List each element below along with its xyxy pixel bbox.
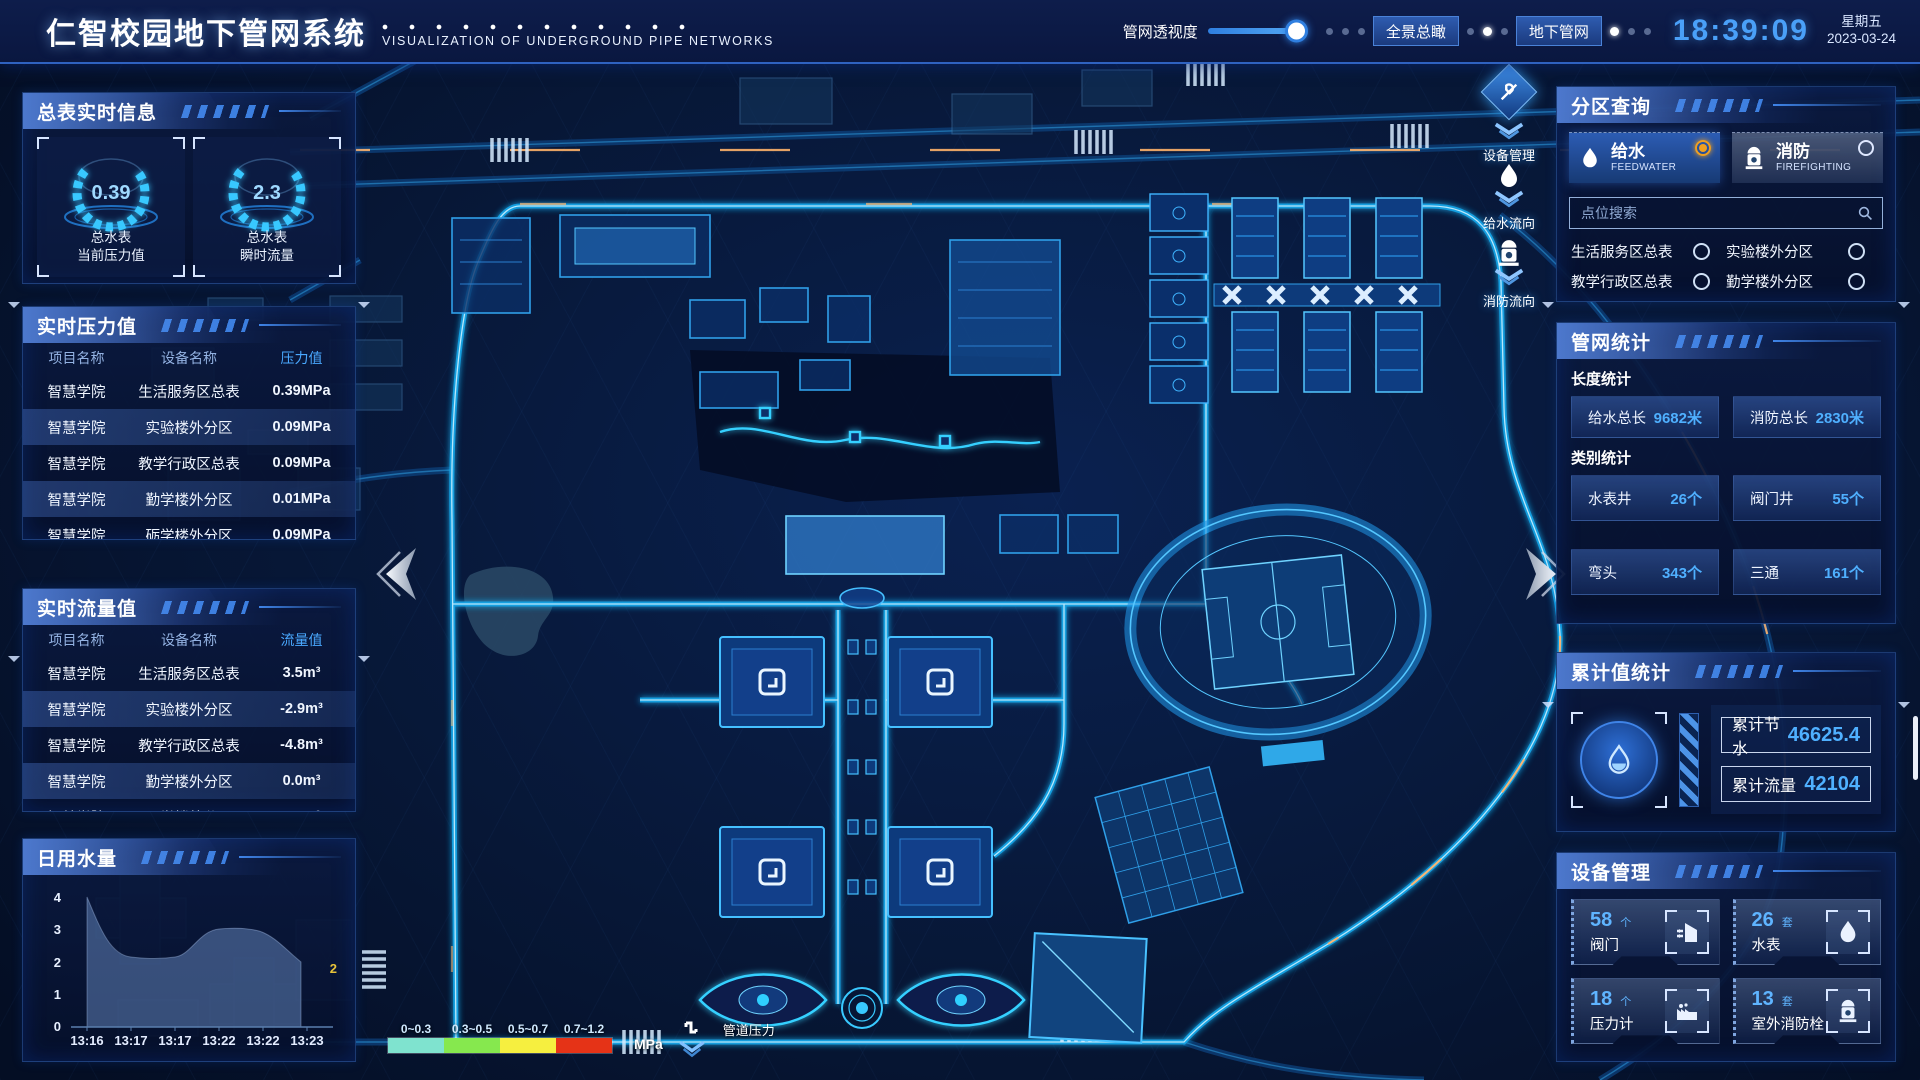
gym <box>1029 933 1146 1043</box>
zone-option[interactable]: 宿舍区泵房 <box>1726 297 1881 302</box>
radio-icon <box>1848 273 1865 290</box>
chart-end-value: 2 <box>330 961 337 976</box>
opacity-slider-label: 管网透视度 <box>1123 21 1198 42</box>
brand: 仁智校园地下管网系统 VISUALIZATION OF UNDERGROUND … <box>0 9 774 53</box>
panel-title: 日用水量 <box>37 844 117 871</box>
gauge-label: 总水表 <box>240 229 294 247</box>
stat-clipped <box>1733 623 1881 624</box>
weekday: 星期五 <box>1841 15 1882 30</box>
svg-text:2: 2 <box>54 955 61 970</box>
slash-decoration <box>1675 335 1763 348</box>
panel-title: 实时流量值 <box>37 594 137 621</box>
zone-option[interactable]: 生活服务区总表 <box>1571 237 1726 266</box>
svg-text:13:17: 13:17 <box>158 1033 191 1048</box>
svg-text:0: 0 <box>54 1019 61 1034</box>
water-drop-icon <box>1579 145 1601 171</box>
tab-firefighting[interactable]: 消防FIREFIGHTING <box>1732 132 1883 183</box>
table-header: 项目名称设备名称压力值 <box>23 343 355 373</box>
panel-daily-water: 日用水量 4 3 2 1 0 13:16 13:17 13:17 13:22 1… <box>22 838 356 1062</box>
hydrant-icon <box>1495 238 1523 268</box>
length-stats-label: 长度统计 <box>1557 359 1895 396</box>
water-saving-icon-box <box>1571 712 1667 808</box>
stadium <box>1119 495 1440 779</box>
table-row: 智慧学院生活服务区总表3.5m³ <box>23 655 355 691</box>
slash-decoration <box>181 105 269 118</box>
page-title: 仁智校园地下管网系统 <box>46 9 366 53</box>
stat-fire-length: 消防总长2830米 <box>1733 396 1881 438</box>
radio-icon <box>1848 243 1865 260</box>
map-button-fire-flow[interactable]: 消防流向 <box>1466 238 1552 310</box>
slash-decoration <box>1675 99 1763 112</box>
gauge-dial: 2.3 <box>212 137 322 233</box>
stat-clipped <box>1571 623 1719 624</box>
daily-water-chart: 4 3 2 1 0 13:16 13:17 13:17 13:22 13:22 … <box>23 875 355 1056</box>
slider-knob[interactable] <box>1285 20 1308 43</box>
table-row: 智慧学院勤学楼外分区0.0m³ <box>23 763 355 799</box>
hydrant-icon <box>1742 145 1766 171</box>
pipe-pressure-icon[interactable] <box>677 1021 707 1059</box>
dot-separator <box>1326 28 1365 35</box>
stat-valve-well: 阀门井55个 <box>1733 475 1881 521</box>
tools-icon <box>1481 64 1538 121</box>
slash-decoration <box>1675 865 1763 878</box>
device-card-watermeter[interactable]: 26套水表 <box>1733 899 1882 965</box>
svg-text:13:22: 13:22 <box>202 1033 235 1048</box>
clock: 18:39:09 <box>1673 14 1809 48</box>
accumulated-saving: 累计节水46625.4 <box>1721 717 1871 753</box>
dot-separator <box>1467 27 1508 36</box>
legend-unit: MPa <box>634 1036 663 1052</box>
table-row: 智慧学院实验楼外分区-2.9m³ <box>23 691 355 727</box>
panel-zone-query: 分区查询 给水FEEDWATER 消防FIREFIGHTING 生活服务区总表 … <box>1556 86 1896 302</box>
search-input[interactable] <box>1579 204 1858 222</box>
panel-title: 实时压力值 <box>37 312 137 339</box>
gauge-label: 瞬时流量 <box>240 247 294 265</box>
water-drop-icon <box>1604 743 1634 777</box>
dashboard-root: { "header": { "title": "仁智校园地下管网系统", "su… <box>0 0 1920 1080</box>
slash-decoration <box>161 601 249 614</box>
panel-edge-marker <box>8 656 20 668</box>
stat-tee: 三通161个 <box>1733 549 1881 595</box>
zone-option[interactable]: 实验楼外分区 <box>1726 237 1881 266</box>
panel-pipe-stats: 管网统计 长度统计 给水总长9682米 消防总长2830米 类别统计 水表井26… <box>1556 322 1896 624</box>
table-header: 项目名称设备名称流量值 <box>23 625 355 655</box>
pressure-gauge-icon <box>1665 989 1709 1033</box>
panel-edge-marker <box>358 302 370 314</box>
panel-title: 设备管理 <box>1571 858 1651 885</box>
table-row: 智慧学院勤学楼外分区0.01MPa <box>23 481 355 517</box>
slash-decoration <box>1695 665 1783 678</box>
map-arrow-left[interactable] <box>374 544 420 609</box>
pressure-legend: 0~0.30.3~0.5 0.5~0.70.7~1.2 MPa 管道压力 <box>388 1020 775 1053</box>
device-card-hydrant[interactable]: 13套室外消防栓 <box>1733 978 1882 1044</box>
dot-separator <box>1610 27 1651 36</box>
water-drop-icon <box>1826 910 1870 954</box>
map-button-feed-flow[interactable]: 给水流向 <box>1466 162 1552 232</box>
scrollbar[interactable] <box>1913 716 1918 780</box>
radio-icon <box>1693 243 1710 260</box>
legend-colorbar <box>388 1038 612 1053</box>
gauge-label: 当前压力值 <box>77 247 145 265</box>
panel-title: 总表实时信息 <box>37 98 157 125</box>
radio-unselected-icon <box>1858 140 1874 156</box>
search-icon <box>1858 206 1873 221</box>
underground-button[interactable]: 地下管网 <box>1516 16 1602 46</box>
panel-edge-marker <box>1898 302 1910 314</box>
table-row: 智慧学院砺学楼外分区2.3m³ <box>23 799 355 812</box>
panel-edge-marker <box>1542 302 1554 314</box>
panel-flow: 实时流量值 项目名称设备名称流量值 智慧学院生活服务区总表3.5m³ 智慧学院实… <box>22 588 356 812</box>
legend-label: 管道压力 <box>723 1020 775 1039</box>
gauge-flow: 2.3 总水表瞬时流量 <box>193 137 341 277</box>
courts-grid <box>1095 767 1243 923</box>
svg-text:3: 3 <box>54 922 61 937</box>
zone-option[interactable]: 砺学楼外分区 <box>1571 297 1726 302</box>
slash-decoration <box>161 319 249 332</box>
device-card-valve[interactable]: 58个阀门 <box>1571 899 1720 965</box>
table-row: 智慧学院实验楼外分区0.09MPa <box>23 409 355 445</box>
map-button-device-mgmt[interactable]: 设备管理 <box>1466 66 1552 164</box>
slash-decoration <box>141 851 229 864</box>
top-header: 仁智校园地下管网系统 VISUALIZATION OF UNDERGROUND … <box>0 0 1920 64</box>
zone-option[interactable]: 勤学楼外分区 <box>1726 267 1881 296</box>
courtyard-buildings <box>720 637 992 917</box>
panel-device-mgmt: 设备管理 58个阀门 26套水表 18个压力计 13套室外消防栓 <box>1556 852 1896 1062</box>
tab-feedwater[interactable]: 给水FEEDWATER <box>1569 132 1720 183</box>
hydrant-icon <box>1826 989 1870 1033</box>
panel-title: 累计值统计 <box>1571 658 1671 685</box>
chevron-down-icon <box>1492 122 1526 140</box>
date: 2023-03-24 <box>1827 32 1896 47</box>
panel-edge-marker <box>1898 702 1910 714</box>
search-box[interactable] <box>1569 197 1883 229</box>
valve-icon <box>1665 910 1709 954</box>
table-row: 智慧学院教学行政区总表0.09MPa <box>23 445 355 481</box>
panel-title: 管网统计 <box>1571 328 1651 355</box>
water-drop-icon <box>1496 162 1522 190</box>
svg-text:1: 1 <box>54 987 61 1002</box>
date-block: 星期五 2023-03-24 <box>1827 15 1896 47</box>
svg-text:13:22: 13:22 <box>246 1033 279 1048</box>
svg-text:0.39: 0.39 <box>92 182 131 204</box>
stat-elbow: 弯头343个 <box>1571 549 1719 595</box>
stat-meter-well: 水表井26个 <box>1571 475 1719 521</box>
stripe-decoration <box>1679 713 1699 807</box>
zone-option[interactable]: 教学行政区总表 <box>1571 267 1726 296</box>
svg-text:2.3: 2.3 <box>253 182 281 204</box>
panel-pressure: 实时压力值 项目名称设备名称压力值 智慧学院生活服务区总表0.39MPa 智慧学… <box>22 306 356 540</box>
gauge-dial: 0.39 <box>56 137 166 233</box>
svg-text:4: 4 <box>54 890 62 905</box>
chevron-down-icon <box>1492 190 1526 208</box>
radio-icon <box>1693 273 1710 290</box>
svg-text:13:23: 13:23 <box>290 1033 323 1048</box>
panel-meter-info: 总表实时信息 0.39 总水表当前压力值 2.3 总水表瞬时流量 <box>22 92 356 284</box>
table-row: 智慧学院生活服务区总表0.39MPa <box>23 373 355 409</box>
basketball-courts <box>1150 194 1208 403</box>
category-stats-label: 类别统计 <box>1557 438 1895 475</box>
opacity-slider[interactable] <box>1208 28 1304 34</box>
accumulated-flow: 累计流量42104 <box>1721 766 1871 802</box>
panel-edge-marker <box>358 656 370 668</box>
chevron-down-icon <box>1492 268 1526 286</box>
panel-accumulated: 累计值统计 累计节水46625.4 累计流量42104 <box>1556 652 1896 832</box>
table-row: 智慧学院教学行政区总表-4.8m³ <box>23 727 355 763</box>
page-subtitle: VISUALIZATION OF UNDERGROUND PIPE NETWOR… <box>382 34 774 48</box>
panel-edge-marker <box>1542 702 1554 714</box>
overview-button[interactable]: 全景总瞰 <box>1373 16 1459 46</box>
dots-decoration <box>382 24 700 30</box>
stat-feedwater-length: 给水总长9682米 <box>1571 396 1719 438</box>
radio-selected-icon <box>1695 140 1711 156</box>
svg-text:13:17: 13:17 <box>114 1033 147 1048</box>
panel-title: 分区查询 <box>1571 92 1651 119</box>
device-card-pressure-gauge[interactable]: 18个压力计 <box>1571 978 1720 1044</box>
table-row: 智慧学院砺学楼外分区0.09MPa <box>23 517 355 540</box>
gauge-label: 总水表 <box>77 229 145 247</box>
dormitories <box>1214 198 1440 392</box>
gauge-pressure: 0.39 总水表当前压力值 <box>37 137 185 277</box>
panel-edge-marker <box>8 302 20 314</box>
legend-ticks: 0~0.30.3~0.5 0.5~0.70.7~1.2 <box>388 1022 612 1036</box>
svg-text:13:16: 13:16 <box>70 1033 103 1048</box>
